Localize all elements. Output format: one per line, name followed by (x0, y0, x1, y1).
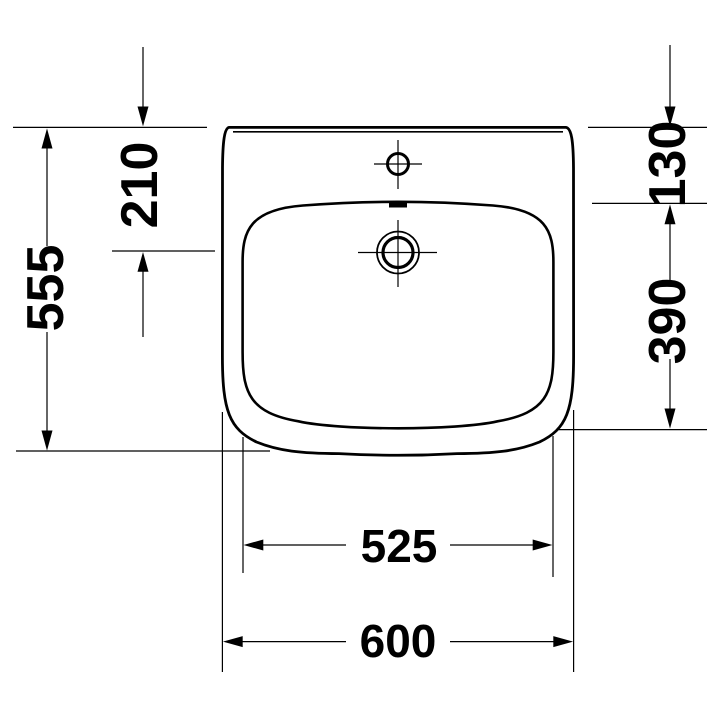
drain-hole (358, 220, 437, 287)
dim-555-arrow-up (42, 128, 53, 148)
overflow-mark (389, 202, 407, 208)
dim-525-arrow-right (533, 540, 553, 551)
dim-label-left-outer: 555 (20, 218, 72, 358)
dim-label-bottom-outer: 600 (328, 618, 468, 664)
dim-label-bottom-inner: 525 (329, 523, 469, 569)
dim-label-right-top: 130 (642, 94, 694, 234)
faucet-hole (374, 140, 422, 189)
washbasin-technical-drawing: 555 210 130 390 525 600 (0, 0, 720, 720)
dim-600-arrow-left (223, 636, 243, 647)
dim-555-arrow-down (42, 431, 53, 451)
dim-525-arrow-left (244, 540, 264, 551)
dim-label-right-bottom: 390 (642, 251, 694, 391)
dim-390-arrow-down (665, 409, 676, 429)
drawing-canvas (0, 0, 720, 720)
dim-600-arrow-right (553, 636, 573, 647)
dim-label-left-inner: 210 (114, 115, 166, 255)
